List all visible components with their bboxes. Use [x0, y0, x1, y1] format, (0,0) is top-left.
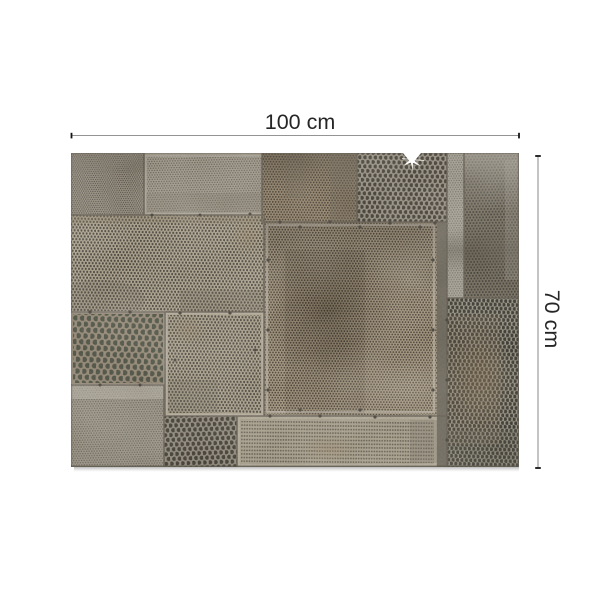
svg-text:100 cm: 100 cm	[265, 110, 336, 134]
svg-text:70 cm: 70 cm	[540, 290, 564, 349]
